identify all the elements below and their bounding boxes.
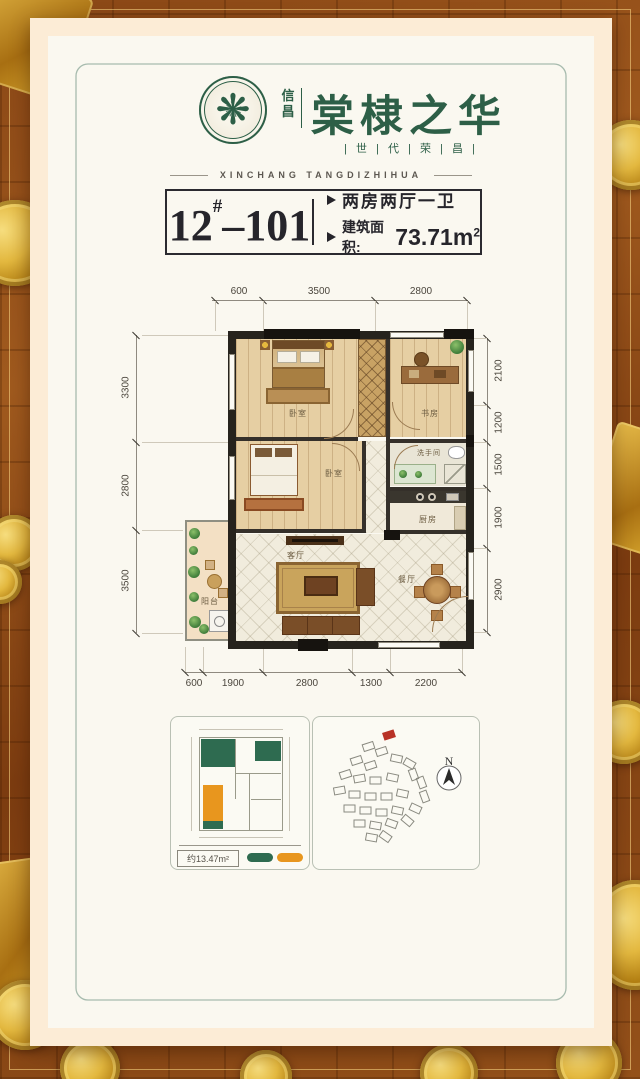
washer-drum <box>214 616 225 627</box>
unit-number: 12#–101 <box>167 197 312 248</box>
desk-item <box>434 370 446 378</box>
wall-block <box>384 530 400 540</box>
washing-machine <box>209 610 229 632</box>
wall-interior <box>386 339 390 441</box>
wardrobe <box>358 339 386 437</box>
dim-extension <box>474 548 487 549</box>
tv-console <box>286 536 344 545</box>
room-label-bedroom1: 卧室 <box>278 408 318 419</box>
wall-interior <box>390 530 466 534</box>
plant-icon <box>188 566 200 578</box>
armchair <box>356 568 375 606</box>
dim-label-right: 1200 <box>494 401 505 445</box>
dim-extension <box>474 632 487 633</box>
dim-extension <box>390 647 391 672</box>
dim-label-right: 2100 <box>494 349 505 393</box>
brand-name-main: 棠棣之华 <box>311 82 507 144</box>
dim-label-left: 3500 <box>121 559 132 603</box>
dim-extension <box>142 530 183 531</box>
brand-name-vertical: 信昌 <box>279 88 297 121</box>
tv-screen <box>292 539 338 542</box>
brand-subtitle-en: XINCHANG TANGDIZHIHUA <box>220 170 422 180</box>
mini-plan-orange-area <box>203 785 223 821</box>
dim-line-right <box>487 338 488 632</box>
bed-double <box>272 340 325 388</box>
flower-icon <box>399 470 407 478</box>
mini-plan-green-area <box>255 741 281 761</box>
window <box>229 456 235 500</box>
mini-plan-wall <box>249 773 250 831</box>
stove-burner <box>428 493 436 501</box>
brand-divider <box>301 88 302 128</box>
dim-extension <box>375 301 376 331</box>
mini-plan-dim-line <box>199 837 283 838</box>
dim-label-left: 3300 <box>121 366 132 410</box>
plant-icon <box>450 340 464 354</box>
wall-block <box>466 435 474 447</box>
dim-extension <box>263 301 264 331</box>
wall-block <box>298 639 328 651</box>
pillow <box>277 351 297 363</box>
dim-extension <box>467 301 468 331</box>
legend-area-label: 约13.47m² <box>177 850 239 867</box>
dim-label-bottom: 1300 <box>349 678 393 689</box>
site-plan-panel: N <box>312 716 480 870</box>
site-plan-map: N <box>313 717 479 869</box>
coffee-table <box>304 576 338 596</box>
poster: ❋ ✳ 信昌 棠棣之华 | 世 | 代 | 荣 | 昌 | XINCHANG T… <box>0 0 640 1079</box>
highlighted-building <box>382 729 396 740</box>
mini-unit-plan-panel: 约13.47m² <box>170 716 310 870</box>
arrow-icon <box>327 195 336 205</box>
wall-interior <box>236 529 366 533</box>
content-card: ❋ ✳ 信昌 棠棣之华 | 世 | 代 | 荣 | 昌 | XINCHANG T… <box>48 36 594 1028</box>
rug <box>266 388 330 404</box>
dim-extension <box>474 442 487 443</box>
dim-label-top: 3500 <box>297 286 341 297</box>
dim-label-bottom: 2200 <box>404 678 448 689</box>
window <box>468 350 474 392</box>
dining-chair <box>431 564 443 575</box>
dim-label-top: 2800 <box>399 286 443 297</box>
dim-label-left: 2800 <box>121 464 132 508</box>
brand-subtitle-row: XINCHANG TANGDIZHIHUA <box>48 170 594 180</box>
window <box>378 642 440 648</box>
brand-medallion-icon: ❋ ✳ <box>199 76 267 144</box>
wall-block <box>444 329 474 339</box>
balcony-table <box>207 574 222 589</box>
unit-dash: – <box>222 201 244 250</box>
subtitle-left-line <box>170 175 208 176</box>
dim-label-right: 2900 <box>494 568 505 612</box>
wall-interior <box>390 487 466 491</box>
wall-interior <box>236 437 358 441</box>
dim-line-left <box>136 335 137 633</box>
dim-extension <box>142 633 183 634</box>
dim-extension <box>474 405 487 406</box>
nightstand-lamp <box>260 340 270 350</box>
window <box>229 354 235 410</box>
flower-icon <box>415 471 422 478</box>
desk-item <box>409 370 419 378</box>
north-compass-icon: N <box>437 754 461 790</box>
arrow-icon <box>327 232 336 242</box>
room-label-dining: 餐厅 <box>392 574 422 585</box>
pillow <box>255 448 272 457</box>
dim-label-bottom: 2800 <box>285 678 329 689</box>
room-balcony: 阳台 <box>185 520 232 641</box>
kitchen-counter-side <box>454 506 466 530</box>
mini-plan-dim-line <box>289 737 290 831</box>
floor-plan: 600 3500 2800 600 1900 2800 1300 2200 33… <box>118 280 508 700</box>
dim-extension <box>185 647 186 672</box>
stove-burner <box>416 493 424 501</box>
dim-extension <box>462 647 463 672</box>
dim-label-bottom: 600 <box>172 678 216 689</box>
mini-plan-dim-line <box>191 737 192 831</box>
unit-area-value: 73.71m2 <box>395 224 480 251</box>
dim-label-top: 600 <box>217 286 261 297</box>
plant-icon <box>199 624 209 634</box>
unit-room: 101 <box>244 201 310 250</box>
rug <box>244 498 304 511</box>
dim-label-right: 1900 <box>494 496 505 540</box>
room-label-balcony: 阳台 <box>193 596 227 607</box>
mini-plan-wall <box>235 739 236 799</box>
legend-orange-swatch <box>277 853 303 862</box>
brand-tagline: | 世 | 代 | 荣 | 昌 | <box>306 140 516 156</box>
room-label-kitchen: 厨房 <box>408 514 448 525</box>
bed-double <box>250 444 298 496</box>
wall-interior <box>362 441 366 533</box>
sofa <box>282 616 360 635</box>
balcony-stool <box>205 560 215 570</box>
dim-extension <box>203 647 204 672</box>
bed-headboard <box>273 341 324 349</box>
dim-extension <box>474 488 487 489</box>
unit-block: 12 <box>169 201 213 250</box>
mini-plan-green-area <box>203 821 223 829</box>
shower <box>444 464 466 484</box>
dim-label-right: 1500 <box>494 443 505 487</box>
poster-card: ❋ ✳ 信昌 棠棣之华 | 世 | 代 | 荣 | 昌 | XINCHANG T… <box>30 18 612 1046</box>
dim-line-top <box>212 300 468 301</box>
legend-green-swatch <box>247 853 273 862</box>
mini-plan-dim-line <box>199 729 283 730</box>
kitchen-sink <box>446 493 459 501</box>
mini-plan-wall <box>251 799 281 800</box>
dim-extension <box>142 442 230 443</box>
desk <box>401 366 459 384</box>
dim-extension <box>474 338 487 339</box>
dining-table <box>423 576 451 604</box>
unit-feature: 两房两厅一卫 <box>342 187 456 212</box>
wall-block <box>264 329 360 339</box>
unit-title-box: 12#–101 两房两厅一卫 建筑面积: 73.71m2 <box>165 189 482 255</box>
unit-area-label: 建筑面积: <box>342 217 395 257</box>
unit-block-sup: # <box>213 196 223 217</box>
unit-details: 两房两厅一卫 建筑面积: 73.71m2 <box>314 187 480 257</box>
plant-icon <box>189 528 200 539</box>
kitchen-counter <box>390 491 466 503</box>
dim-extension <box>215 301 216 331</box>
dim-extension <box>142 335 230 336</box>
bed-blanket <box>273 367 324 387</box>
blanket-fold <box>251 475 297 476</box>
window <box>390 332 444 338</box>
desk-chair <box>414 352 429 367</box>
pillow <box>275 448 292 457</box>
legend-separator <box>179 845 301 846</box>
mini-plan-wall <box>235 773 281 774</box>
pillow <box>300 351 320 363</box>
mini-plan-green-area <box>201 739 235 767</box>
dim-line-bottom <box>185 672 463 673</box>
window <box>468 552 474 600</box>
plant-icon <box>189 546 198 555</box>
room-label-living: 客厅 <box>276 550 316 561</box>
wall-interior <box>386 439 466 443</box>
wall-interior <box>386 443 390 534</box>
dim-extension <box>352 647 353 672</box>
nightstand-lamp <box>324 340 334 350</box>
dim-extension <box>263 647 264 672</box>
dim-label-bottom: 1900 <box>211 678 255 689</box>
subtitle-right-line <box>434 175 472 176</box>
